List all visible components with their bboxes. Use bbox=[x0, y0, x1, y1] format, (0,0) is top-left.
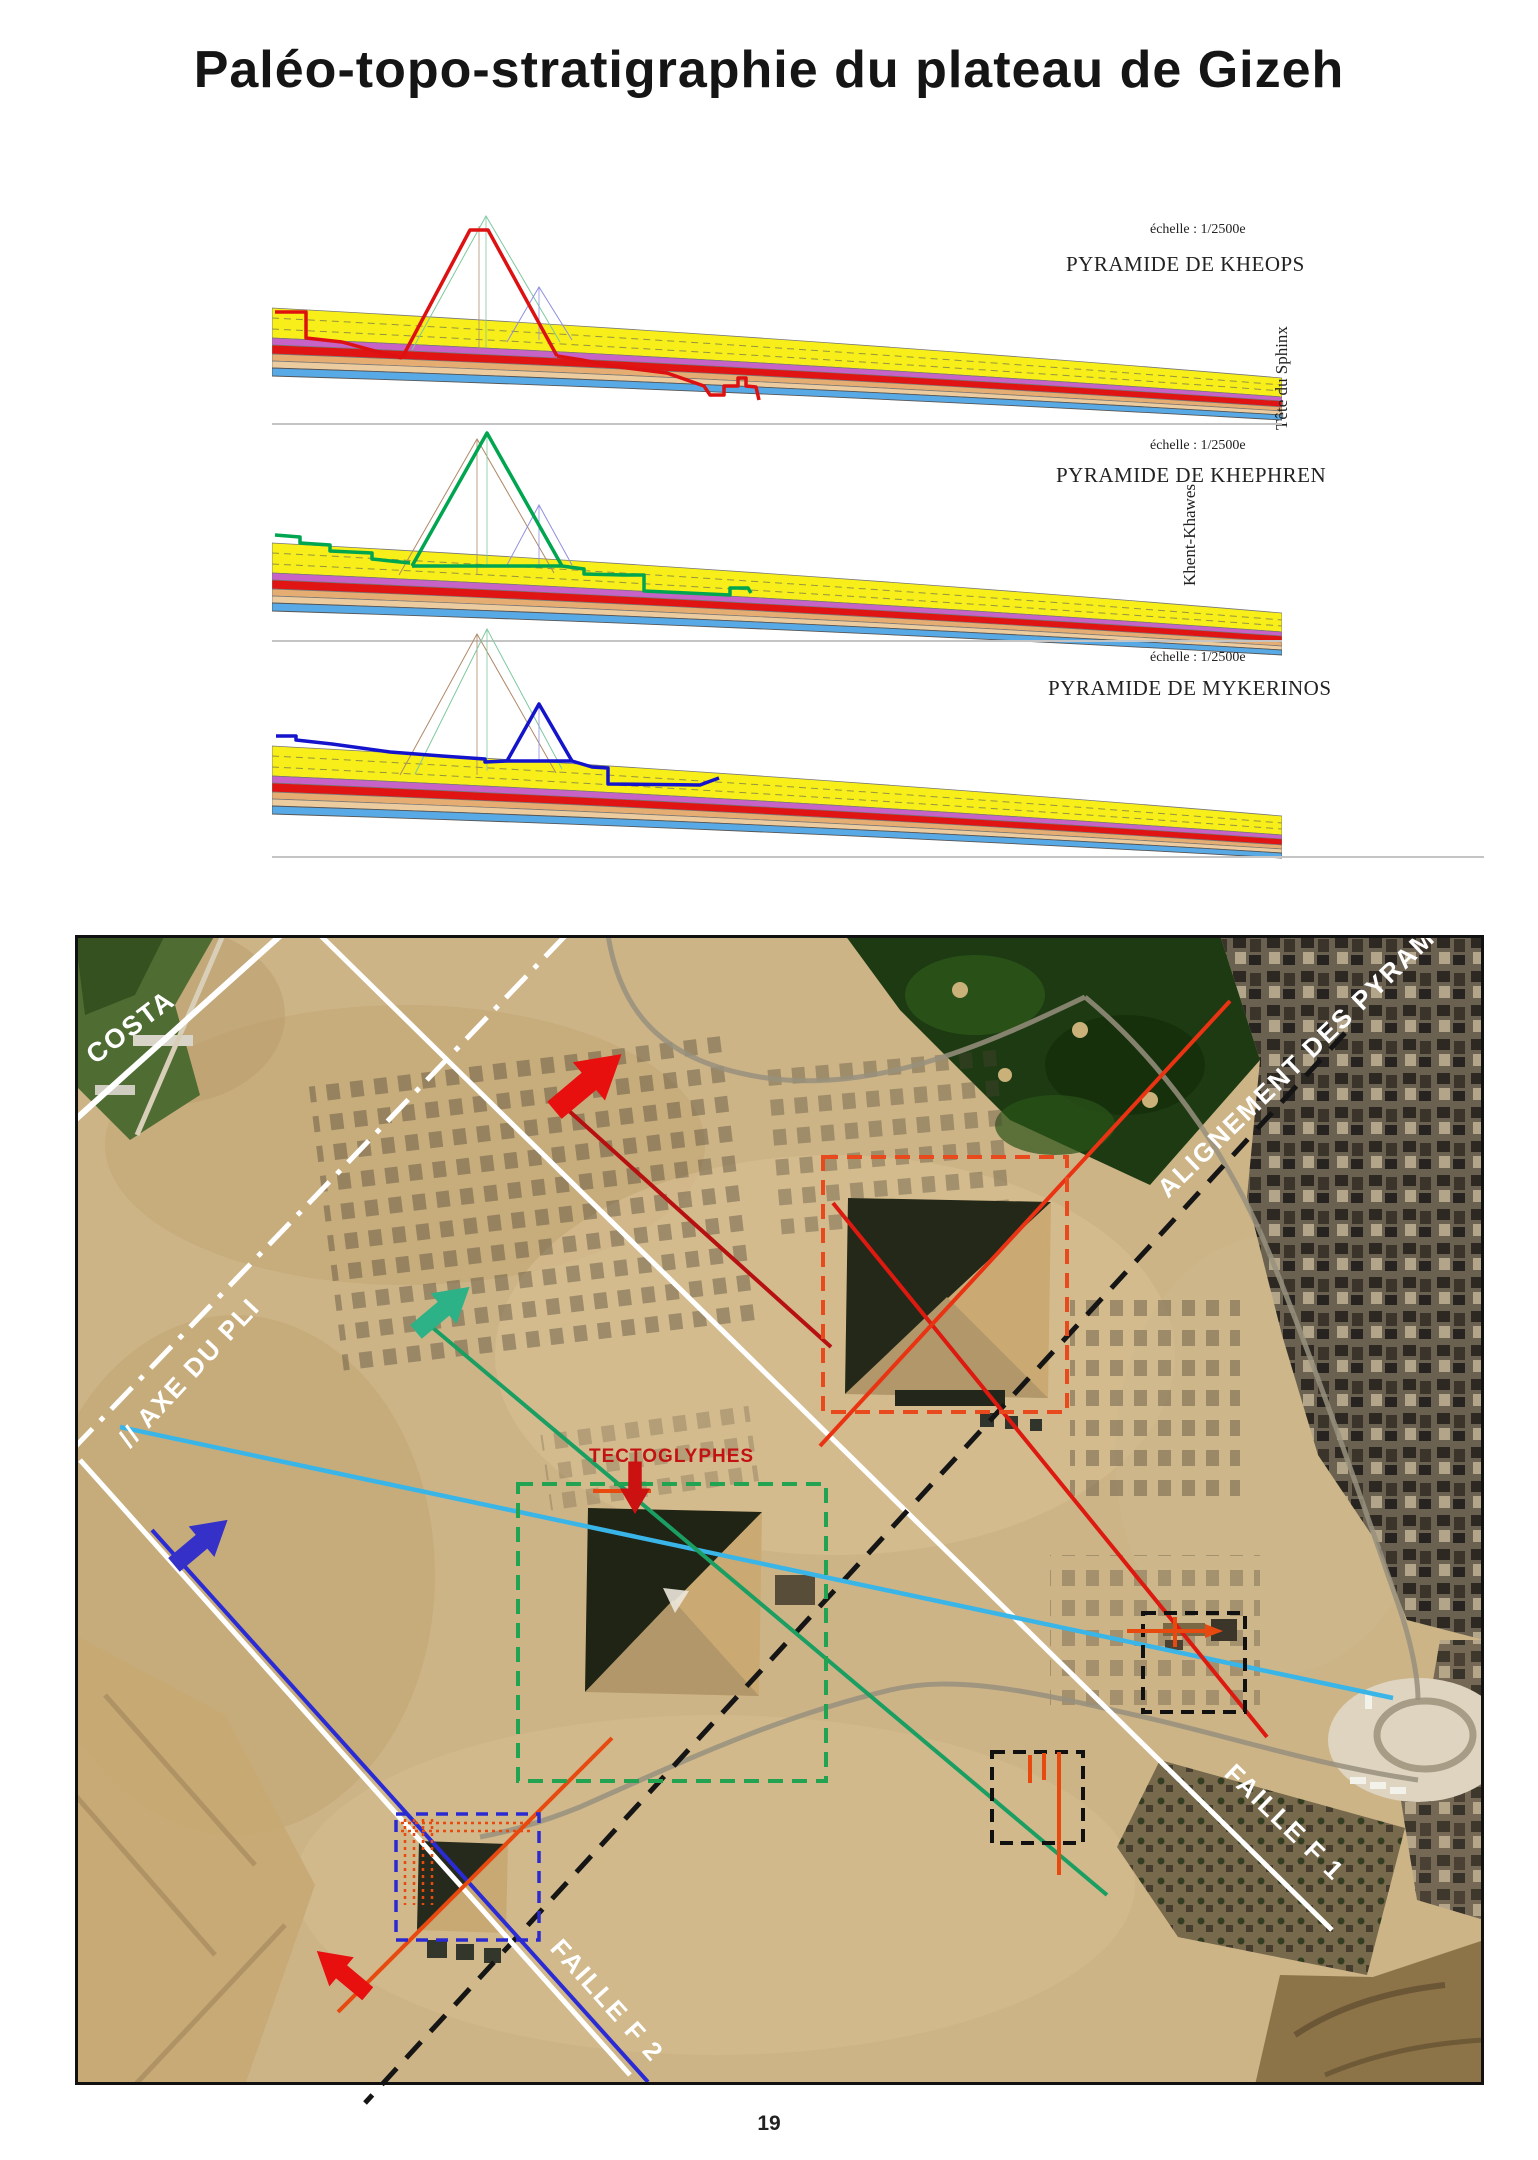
cross-section-kheops bbox=[272, 190, 1282, 440]
section-title-mykerinos: PYRAMIDE DE MYKERINOS bbox=[1048, 676, 1332, 701]
mastaba-field-west bbox=[308, 1031, 761, 1380]
page-number: 19 bbox=[0, 2112, 1538, 2136]
tectoglyphes-label: TECTOGLYPHES bbox=[589, 1446, 754, 1467]
giza-satellite-map: COSTA ALIGNEMENT DES PYRAMIDES // AXE DU… bbox=[75, 935, 1484, 2120]
section-title-kheops: PYRAMIDE DE KHEOPS bbox=[1066, 252, 1305, 277]
side-label-khent-khawes: Khent-Khawes bbox=[1180, 450, 1200, 620]
separator-3 bbox=[272, 856, 1484, 858]
scale-label-mykerinos: échelle : 1/2500e bbox=[1150, 650, 1246, 666]
cross-section-mykerinos bbox=[272, 628, 1282, 878]
scale-label-kheops: échelle : 1/2500e bbox=[1150, 222, 1246, 238]
satellite-map-figure: COSTA ALIGNEMENT DES PYRAMIDES // AXE DU… bbox=[75, 935, 1484, 2120]
page-title: Paléo-topo-stratigraphie du plateau de G… bbox=[0, 40, 1538, 100]
satellite-terrain bbox=[75, 935, 1484, 2085]
document-page: Paléo-topo-stratigraphie du plateau de G… bbox=[0, 0, 1538, 2160]
mastaba-field-east bbox=[1070, 1300, 1240, 1510]
